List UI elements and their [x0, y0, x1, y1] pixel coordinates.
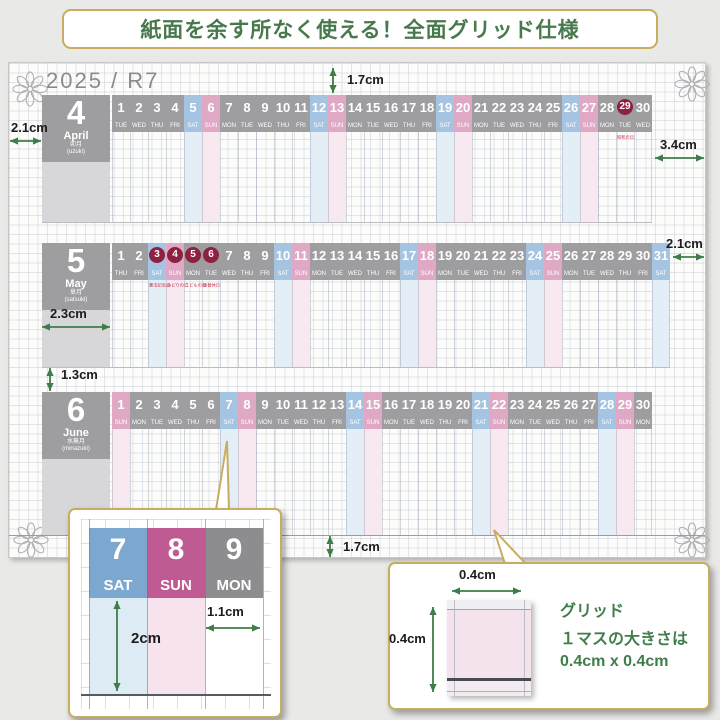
zoom-inset-days: 7SAT8SUN9MON [68, 508, 282, 718]
dow-cell: SAT [220, 416, 238, 429]
date-cell: 25 [544, 95, 562, 119]
month-bottom-line [42, 222, 652, 223]
measure-zoom-cell-width: 1.1cm [207, 604, 244, 619]
dow-cell: MON [256, 416, 274, 429]
day-column-stripe [184, 132, 202, 222]
day-column-stripe [238, 132, 256, 222]
dow-cell: THU [310, 416, 328, 429]
day-column-stripe [634, 429, 652, 535]
dow-cell: SAT [562, 119, 580, 132]
dow-cell: SUN [238, 416, 256, 429]
dow-cell: THU [526, 119, 544, 132]
day-column-stripe [274, 280, 292, 367]
day-column-stripe [580, 429, 598, 535]
dow-cell: THU [616, 267, 634, 280]
day-column-stripe [346, 132, 364, 222]
day-column-stripe [256, 280, 274, 367]
dow-cell: FRI [418, 119, 436, 132]
day-column-stripe [436, 132, 454, 222]
dow-cell: TUE [454, 267, 472, 280]
day-column-stripe [616, 132, 634, 222]
dow-cell: FRI [454, 416, 472, 429]
day-column-stripe [274, 132, 292, 222]
date-cell: 15 [364, 243, 382, 267]
holiday-name: 振替休日 [203, 282, 218, 288]
grid-cell-magnified [447, 600, 531, 696]
dow-cell: MON [130, 416, 148, 429]
date-cell: 12 [310, 392, 328, 416]
dow-cell: TUE [490, 119, 508, 132]
date-cell: 5 [184, 95, 202, 119]
holiday-circle: 29 [617, 99, 633, 115]
date-cell: 20 [454, 95, 472, 119]
measure-month-column: 2.3cm [50, 306, 87, 321]
dow-cell: MON [562, 267, 580, 280]
dow-cell: SAT [652, 267, 670, 280]
date-cell: 24 [526, 392, 544, 416]
date-cell: 27 [580, 392, 598, 416]
date-cell: 26 [562, 243, 580, 267]
date-cell: 3 [148, 392, 166, 416]
date-cell: 16 [382, 95, 400, 119]
date-cell: 9 [256, 243, 274, 267]
date-cell: 8 [238, 392, 256, 416]
dow-cell: THU [436, 416, 454, 429]
day-column-stripe [400, 280, 418, 367]
grid-line [454, 600, 455, 696]
day-column-stripe [418, 429, 436, 535]
day-column-stripe [130, 132, 148, 222]
day-column-stripe [202, 280, 220, 367]
measure-bottom-margin: 1.7cm [343, 539, 380, 554]
date-cell: 28 [598, 243, 616, 267]
date-cell: 29 [616, 243, 634, 267]
day-column-stripe [490, 132, 508, 222]
zoom-date-cell: 7 [89, 528, 147, 572]
date-cell: 7 [220, 392, 238, 416]
dow-cell: THU [400, 119, 418, 132]
day-column-stripe [634, 280, 652, 367]
dow-cell: SUN [418, 267, 436, 280]
dow-cell: TUE [526, 416, 544, 429]
dow-cell: WED [418, 416, 436, 429]
holiday-circle: 3 [149, 247, 165, 263]
dow-cell: WED [166, 416, 184, 429]
zoom-dow-cell: SUN [147, 572, 205, 598]
dow-cell: MON [220, 119, 238, 132]
month-bottom-line [42, 367, 670, 368]
date-cell: 19 [436, 95, 454, 119]
month-name-jp: 水無月 [42, 439, 110, 446]
date-cell: 18 [418, 95, 436, 119]
dow-cell: FRI [130, 267, 148, 280]
dow-cell: SUN [454, 119, 472, 132]
holiday-name: 昭和の日 [617, 134, 632, 140]
dow-cell: SAT [184, 119, 202, 132]
date-cell: 3 [148, 95, 166, 119]
flower-icon [674, 66, 710, 102]
day-column-stripe [526, 280, 544, 367]
dow-cell: FRI [544, 119, 562, 132]
measure-grid-cell-width: 0.4cm [459, 567, 496, 582]
zoom-dow-cell: SAT [89, 572, 147, 598]
dow-cell: WED [256, 119, 274, 132]
day-column-stripe [112, 132, 130, 222]
date-cell: 11 [292, 243, 310, 267]
date-cell: 1 [112, 392, 130, 416]
measure-right-margin-may: 2.1cm [666, 236, 703, 251]
date-cell: 13 [328, 243, 346, 267]
day-column-stripe [454, 280, 472, 367]
dow-cell: WED [292, 416, 310, 429]
dow-cell: FRI [256, 267, 274, 280]
measure-top-margin: 1.7cm [347, 72, 384, 87]
day-column-stripe [472, 132, 490, 222]
date-cell: 23 [508, 95, 526, 119]
day-column-stripe [184, 280, 202, 367]
month-name-jp: 皐月 [42, 290, 110, 297]
dow-cell: TUE [238, 119, 256, 132]
date-cell: 28 [598, 95, 616, 119]
day-column-stripe [220, 280, 238, 367]
grid-cell-bottom-strip [447, 681, 531, 696]
date-cell: 30 [634, 95, 652, 119]
holiday-circle: 4 [167, 247, 183, 263]
dow-cell: TUE [364, 119, 382, 132]
date-cell: 18 [418, 392, 436, 416]
dow-cell: SUN [292, 267, 310, 280]
date-cell: 15 [364, 392, 382, 416]
measure-left-margin: 2.1cm [11, 120, 48, 135]
zoom-dow-cell: MON [205, 572, 263, 598]
day-column-stripe [508, 429, 526, 535]
month-name-en: April [42, 130, 110, 142]
dow-cell: FRI [634, 267, 652, 280]
month-number: 6 [42, 392, 110, 427]
dow-cell: SAT [436, 119, 454, 132]
holiday-circle: 5 [185, 247, 201, 263]
date-cell: 17 [400, 243, 418, 267]
day-column-stripe [310, 429, 328, 535]
dow-cell: THU [562, 416, 580, 429]
day-column-stripe [346, 429, 364, 535]
flower-icon [674, 522, 710, 558]
grid-line [447, 691, 531, 692]
day-column-stripe [346, 280, 364, 367]
date-cell: 6 [202, 392, 220, 416]
date-cell: 14 [346, 392, 364, 416]
date-cell: 2 [130, 95, 148, 119]
date-cell: 21 [472, 243, 490, 267]
day-column-stripe [544, 280, 562, 367]
day-column-stripe [454, 429, 472, 535]
dow-cell: FRI [166, 119, 184, 132]
date-cell: 13 [328, 95, 346, 119]
date-cell: 29 [616, 95, 634, 119]
month-block: 4April卯月(uzuki) [42, 95, 110, 162]
day-column-stripe [220, 132, 238, 222]
date-cell: 10 [274, 95, 292, 119]
day-column-stripe [562, 429, 580, 535]
day-column-stripe [328, 429, 346, 535]
dow-cell: SUN [166, 267, 184, 280]
date-cell: 19 [436, 243, 454, 267]
day-column-stripe [400, 429, 418, 535]
day-column-stripe [418, 280, 436, 367]
dow-cell: WED [220, 267, 238, 280]
dow-cell: MON [382, 416, 400, 429]
day-column-stripe [112, 280, 130, 367]
date-cell: 30 [634, 243, 652, 267]
dow-cell: WED [382, 119, 400, 132]
month-name-jp: 卯月 [42, 142, 110, 149]
measure-zoom-cell-height: 2cm [131, 630, 161, 647]
dow-cell: SUN [616, 416, 634, 429]
dow-cell: TUE [400, 416, 418, 429]
dow-cell: SAT [400, 267, 418, 280]
date-cell: 16 [382, 243, 400, 267]
month-name-romaji: (satsuki) [42, 297, 110, 304]
date-cell: 13 [328, 392, 346, 416]
dow-cell: FRI [328, 416, 346, 429]
dow-cell: FRI [202, 416, 220, 429]
holiday-circle: 6 [203, 247, 219, 263]
date-cell: 24 [526, 95, 544, 119]
dow-cell: MON [436, 267, 454, 280]
day-column-stripe [598, 132, 616, 222]
date-cell: 1 [112, 95, 130, 119]
day-column-stripe [202, 132, 220, 222]
dow-cell: TUE [616, 119, 634, 132]
date-cell: 22 [490, 95, 508, 119]
banner: 紙面を余す所なく使える！全面グリッド仕様 [62, 9, 658, 49]
dow-cell: THU [184, 416, 202, 429]
dow-cell: TUE [148, 416, 166, 429]
zoom-date-cell: 8 [147, 528, 205, 572]
dow-cell: WED [346, 267, 364, 280]
dow-cell: SAT [310, 119, 328, 132]
date-cell: 9 [256, 392, 274, 416]
month-name-romaji: (minazuki) [42, 446, 110, 453]
day-column-stripe [364, 429, 382, 535]
date-cell: 1 [112, 243, 130, 267]
day-column-stripe [418, 132, 436, 222]
day-column-stripe [580, 280, 598, 367]
zoom-date-cell: 9 [205, 528, 263, 572]
day-column-stripe [526, 132, 544, 222]
date-cell: 4 [166, 392, 184, 416]
day-column-stripe [634, 132, 652, 222]
dow-cell: SUN [544, 267, 562, 280]
dow-cell: SAT [526, 267, 544, 280]
month-column-strip [42, 162, 110, 222]
date-cell: 5 [184, 243, 202, 267]
date-cell: 2 [130, 243, 148, 267]
dow-cell: WED [130, 119, 148, 132]
dow-cell: WED [472, 267, 490, 280]
day-column-stripe [544, 429, 562, 535]
day-column-stripe [292, 280, 310, 367]
calendar-product-image: 紙面を余す所なく使える！全面グリッド仕様 2025 / R7 4April卯月(… [0, 0, 720, 720]
dow-cell: TUE [274, 416, 292, 429]
date-cell: 22 [490, 243, 508, 267]
date-cell: 11 [292, 95, 310, 119]
day-column-stripe [598, 280, 616, 367]
dow-cell: MON [508, 416, 526, 429]
day-column-stripe [400, 132, 418, 222]
dow-cell: MON [346, 119, 364, 132]
date-cell: 26 [562, 95, 580, 119]
day-column-stripe [526, 429, 544, 535]
date-cell: 16 [382, 392, 400, 416]
month-block: 5May皐月(satsuki) [42, 243, 110, 310]
dow-cell: TUE [580, 267, 598, 280]
day-column-stripe [436, 429, 454, 535]
date-cell: 8 [238, 95, 256, 119]
day-column-stripe [598, 429, 616, 535]
day-column-stripe [166, 280, 184, 367]
day-column-stripe [256, 132, 274, 222]
dow-cell: FRI [508, 267, 526, 280]
date-cell: 10 [274, 392, 292, 416]
day-column-stripe [364, 132, 382, 222]
day-column-stripe [382, 429, 400, 535]
day-column-stripe [562, 280, 580, 367]
day-column-stripe [652, 280, 670, 367]
day-column-stripe [292, 132, 310, 222]
date-cell: 23 [508, 392, 526, 416]
month-number: 5 [42, 243, 110, 278]
grid-spec-line-3: 0.4cm x 0.4cm [560, 653, 669, 671]
date-cell: 26 [562, 392, 580, 416]
day-column-stripe [364, 280, 382, 367]
grid-line [524, 600, 525, 696]
day-column-stripe [148, 132, 166, 222]
dow-cell: SUN [112, 416, 130, 429]
day-column-stripe [292, 429, 310, 535]
day-column-stripe [616, 429, 634, 535]
date-cell: 22 [490, 392, 508, 416]
dow-cell: THU [238, 267, 256, 280]
measure-grid-cell-height: 0.4cm [389, 631, 426, 646]
dow-cell: THU [148, 119, 166, 132]
date-cell: 6 [202, 95, 220, 119]
day-column-stripe [508, 280, 526, 367]
month-name-en: May [42, 278, 110, 290]
measure-row-gap: 1.3cm [61, 367, 98, 382]
dow-cell: MON [598, 119, 616, 132]
date-cell: 12 [310, 95, 328, 119]
day-column-stripe [382, 132, 400, 222]
date-cell: 14 [346, 243, 364, 267]
month-block: 6June水無月(minazuki) [42, 392, 110, 459]
dow-cell: THU [112, 267, 130, 280]
date-cell: 2 [130, 392, 148, 416]
dow-cell: SAT [472, 416, 490, 429]
day-column-stripe [508, 132, 526, 222]
date-cell: 3 [148, 243, 166, 267]
dow-cell: WED [508, 119, 526, 132]
dow-cell: MON [184, 267, 202, 280]
month-name-en: June [42, 427, 110, 439]
day-column-stripe [436, 280, 454, 367]
date-cell: 17 [400, 392, 418, 416]
dow-cell: WED [598, 267, 616, 280]
grid-cell-top-strip [447, 600, 531, 609]
date-cell: 15 [364, 95, 382, 119]
zoom-bottom-line [81, 694, 271, 696]
date-cell: 4 [166, 95, 184, 119]
dow-cell: SUN [202, 119, 220, 132]
day-column-stripe [166, 132, 184, 222]
holiday-name: 憲法記念日 [149, 282, 164, 288]
dow-cell: FRI [292, 119, 310, 132]
date-cell: 5 [184, 392, 202, 416]
date-cell: 12 [310, 243, 328, 267]
date-cell: 17 [400, 95, 418, 119]
date-cell: 11 [292, 392, 310, 416]
date-cell: 7 [220, 95, 238, 119]
grid-spec-line-1: グリッド [560, 597, 624, 621]
date-cell: 28 [598, 392, 616, 416]
dow-cell: SAT [598, 416, 616, 429]
dow-cell: SAT [274, 267, 292, 280]
dow-cell: SUN [364, 416, 382, 429]
day-column-stripe [310, 280, 328, 367]
dow-cell: THU [364, 267, 382, 280]
date-cell: 9 [256, 95, 274, 119]
date-cell: 24 [526, 243, 544, 267]
dow-cell: SUN [490, 416, 508, 429]
banner-text: 紙面を余す所なく使える！全面グリッド仕様 [140, 14, 579, 44]
zoom-column-line [263, 519, 264, 709]
day-column-stripe [490, 429, 508, 535]
grid-line [447, 609, 531, 610]
day-column-stripe [544, 132, 562, 222]
date-cell: 14 [346, 95, 364, 119]
dow-cell: TUE [328, 267, 346, 280]
date-cell: 23 [508, 243, 526, 267]
date-cell: 29 [616, 392, 634, 416]
holiday-name: こどもの日 [185, 282, 200, 288]
dow-cell: WED [634, 119, 652, 132]
day-column-stripe [580, 132, 598, 222]
day-column-stripe [310, 132, 328, 222]
dow-cell: WED [544, 416, 562, 429]
day-column-stripe [328, 132, 346, 222]
dow-cell: FRI [382, 267, 400, 280]
date-cell: 6 [202, 243, 220, 267]
dow-cell: SUN [580, 119, 598, 132]
date-cell: 27 [580, 243, 598, 267]
dow-cell: MON [472, 119, 490, 132]
dow-cell: THU [274, 119, 292, 132]
date-cell: 18 [418, 243, 436, 267]
zoom-column-line [147, 519, 148, 709]
dow-cell: SAT [148, 267, 166, 280]
date-cell: 25 [544, 243, 562, 267]
holiday-name: みどりの日 [167, 282, 182, 288]
zoom-column-line [205, 519, 206, 709]
day-column-stripe [454, 132, 472, 222]
dow-cell: MON [634, 416, 652, 429]
dow-cell: SUN [328, 119, 346, 132]
date-cell: 27 [580, 95, 598, 119]
grid-line-bold [447, 678, 531, 681]
date-cell: 10 [274, 243, 292, 267]
day-column-stripe [238, 280, 256, 367]
day-column-stripe [472, 280, 490, 367]
